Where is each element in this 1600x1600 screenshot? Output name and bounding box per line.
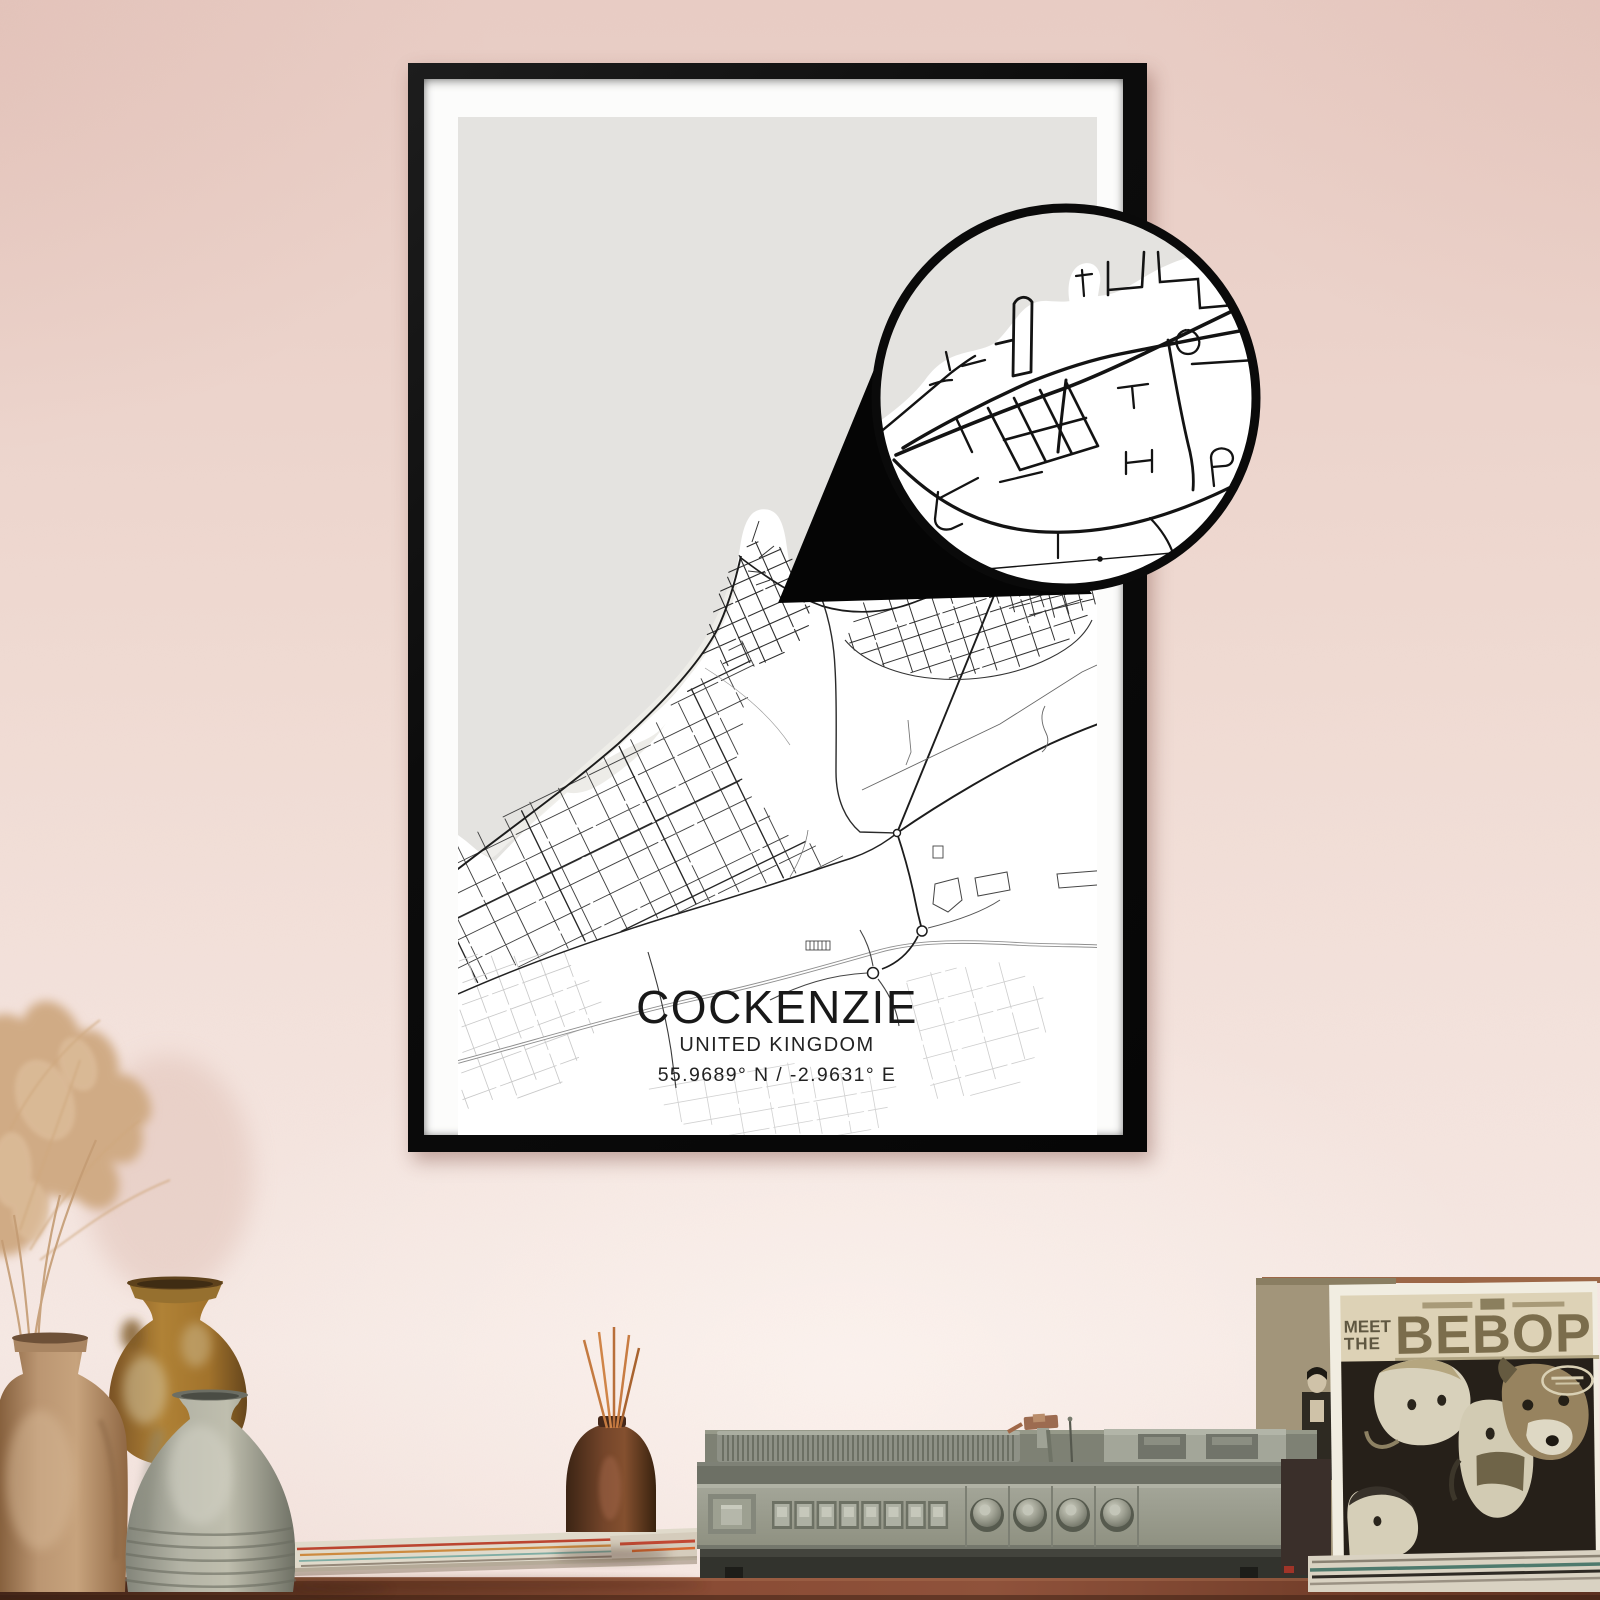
svg-text:THE: THE xyxy=(1344,1334,1381,1354)
